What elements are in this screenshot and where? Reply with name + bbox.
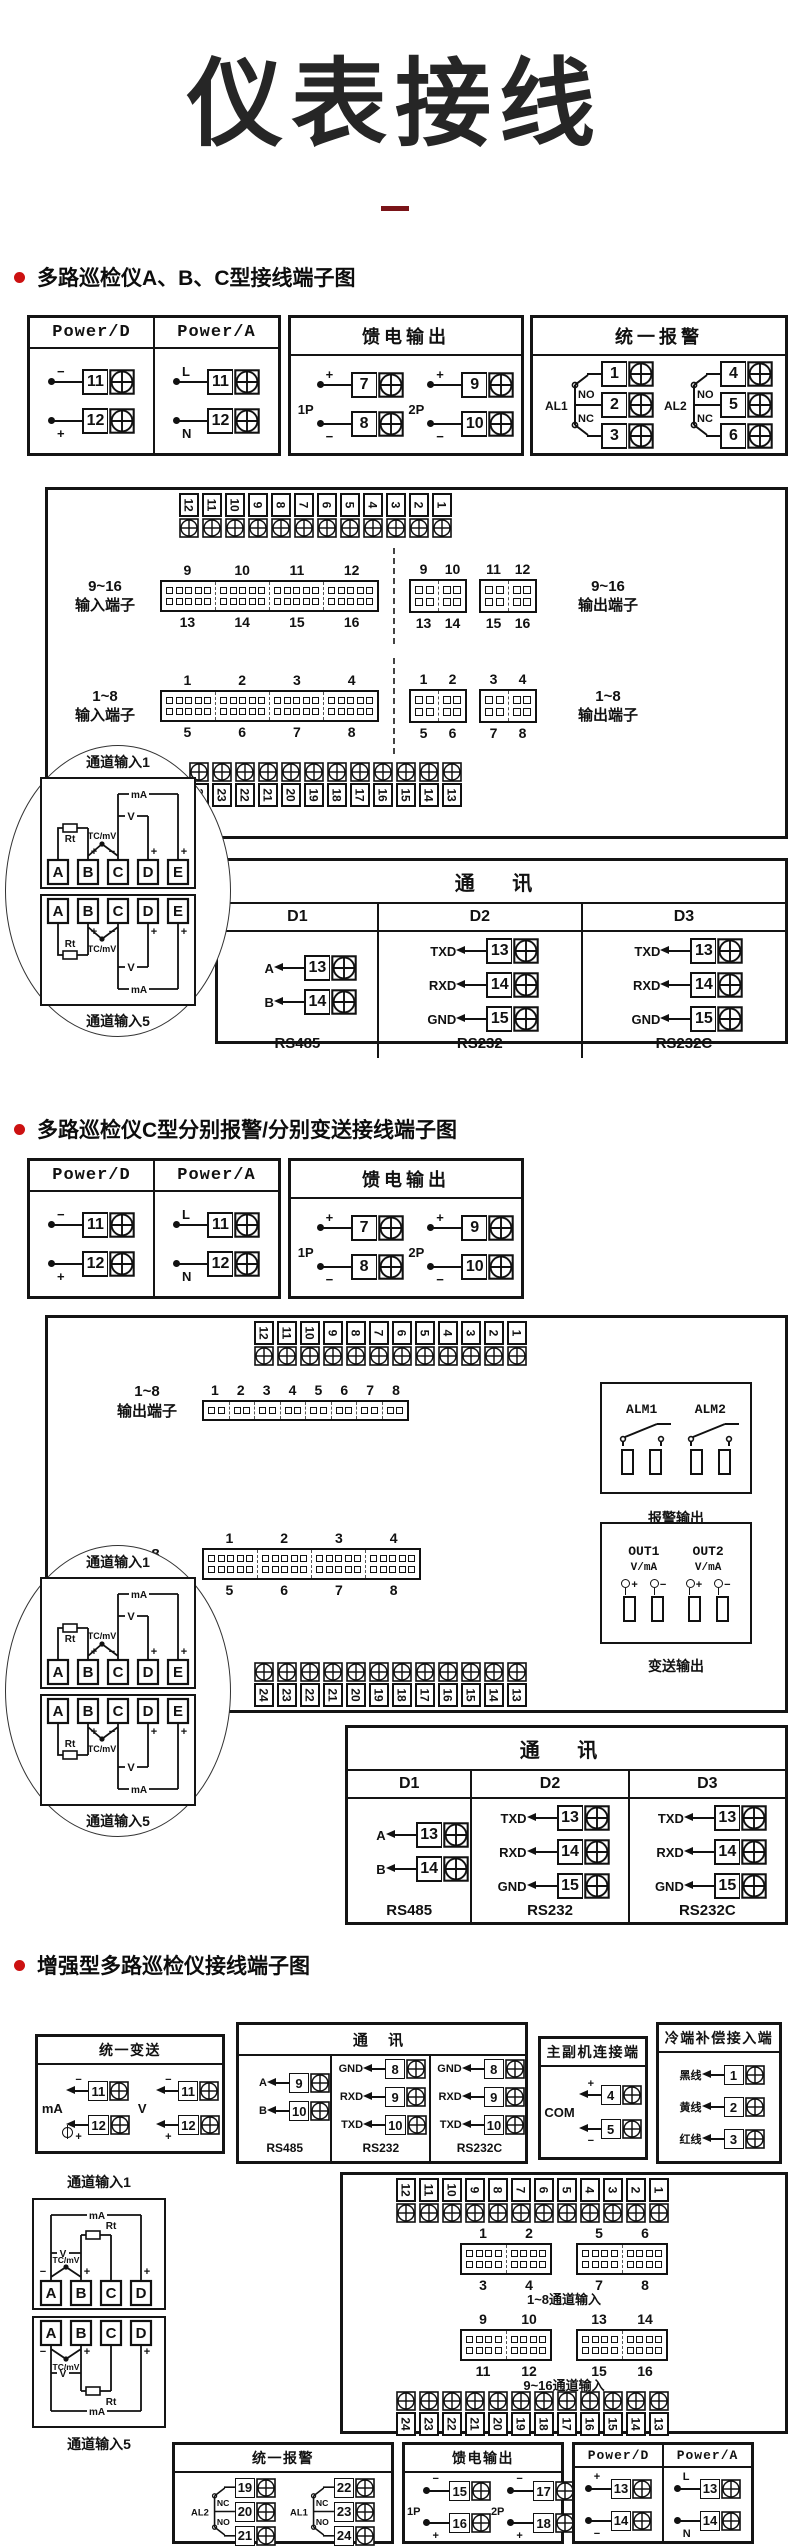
sq [453,586,461,594]
snum: 18 [392,1683,412,1707]
connector: 13141516 [576,2311,668,2379]
output-label: OUT1 [628,1544,659,1559]
terminal-strip: 242322212019181716151413 [188,762,462,807]
path [691,1424,739,1446]
coldbody: 黑线1黄线2红线3 [659,2053,779,2161]
sq [262,1555,269,1562]
channel-circuit-box: ABCDERtTC/mVVmA+−++ [40,1694,196,1806]
pin-numbers: 12 [460,2225,552,2241]
mid: + [91,846,97,858]
snum: 6 [534,2178,554,2202]
sq [513,696,521,704]
screw-terminal-icon [340,518,360,538]
sq [485,2250,492,2257]
sq [511,2347,518,2354]
b: 3 [312,1530,367,1546]
sq [284,587,291,594]
connector: 1234 [460,2225,552,2293]
snum: 2 [484,1321,504,1345]
sq [370,1566,377,1573]
aterm: 5 [720,392,773,418]
terminal-strip: 242322212019181716151413 [253,1662,527,1707]
cgrow [220,708,265,715]
resistor-icon [86,2231,100,2239]
screw-terminal-icon [626,2391,646,2411]
cgrow [208,1566,253,1573]
mid: B [83,1703,94,1720]
sq [281,1566,288,1573]
junction-dot [63,2356,68,2361]
sq [582,2261,589,2268]
sq [396,1407,403,1414]
i: 23 [214,788,228,801]
sq [176,697,183,704]
sq [230,587,237,594]
sq [239,708,246,715]
sq [601,2347,608,2354]
b: 16 [324,614,379,630]
cgrow [274,587,319,594]
unified-alarm-box: 统一报警AL2NCNO192021AL1NCNO222324 [172,2442,394,2544]
screw-terminal-icon [406,2059,426,2079]
i: 2 [412,502,426,509]
b: 4 [508,671,537,687]
snum: 9 [465,2178,485,2202]
tsign: N [182,427,191,440]
screw-terminal-icon [628,423,654,449]
sq [627,2261,634,2268]
connector-block [202,1400,409,1421]
arrow-wire [267,2072,289,2094]
sq [303,697,310,704]
cgrow [627,2347,663,2354]
sq [539,2336,546,2343]
power-column: Power/D+13−14 [575,2445,662,2541]
terminal-number: 15 [449,2481,469,2501]
arrow-left-icon [579,2090,588,2098]
screw-terminal-icon [406,2087,426,2107]
screw-terminal-icon [580,2391,600,2411]
comm-header: 通 讯 [218,861,785,904]
strip-terminal: 4 [579,2178,600,2223]
wired-terminal: +18 [507,2511,574,2535]
sq [303,587,310,594]
terminal-number: 11 [82,369,108,395]
comm-column: D3TXD13RXD14GND15RS232C [628,1771,785,1925]
arrow-left-icon [702,2070,711,2078]
screw-terminal-icon [628,392,654,418]
terminal-number: 7 [351,372,377,398]
tdot [507,2487,514,2494]
strip-terminal: 2 [625,2178,646,2223]
b: 10 [438,561,467,577]
i: 11 [422,2184,436,2197]
tsign: L [182,1208,190,1221]
sq [259,1407,266,1414]
wire: − [317,1255,351,1279]
strip-terminal: 13 [441,762,462,807]
sq [230,598,237,605]
aterms: 456 [720,361,773,449]
sq [485,2261,492,2268]
sq [246,1555,253,1562]
mid: D [143,864,154,881]
cgrow [582,2250,618,2257]
feed-group: 2P+9−10 [408,1215,514,1280]
sq [316,1555,323,1562]
snum: 21 [258,783,278,807]
path [313,2487,333,2536]
screw-terminal-icon [331,955,357,981]
sq [291,1566,298,1573]
screw-terminal-icon [331,989,357,1015]
screw-terminal-icon [632,2511,652,2531]
minus-pin: − [650,1579,666,1591]
text: NC [316,2498,328,2508]
junction-dot [99,936,104,941]
b: 1 [160,672,215,688]
sq [291,1555,298,1562]
snum: 21 [323,1683,343,1707]
sq [328,587,335,594]
i: 9 [326,1330,340,1337]
contact-pins [623,1596,664,1622]
screw-terminal-icon [488,2203,508,2223]
i [649,1449,662,1475]
sq [520,2347,527,2354]
tsign: + [594,2472,600,2483]
sq [249,697,256,704]
channel-label: 通道输入5 [86,1011,150,1031]
channel-circuit-diagram: ABCDRtTC/mVVmA−++ [35,2319,163,2425]
i [688,1596,701,1622]
sq [513,586,521,594]
sq [523,708,531,716]
crows: A9B10 [239,2056,330,2138]
cg [280,1402,306,1419]
i: 6 [395,1330,409,1337]
ccols: D1A13B14RS485D2TXD13RXD14GND15RS232D3TXD… [218,904,785,1058]
comm-protocol: RS485 [274,1035,320,1052]
mid: V [60,2249,67,2260]
b: 1 [202,1530,257,1546]
b: 14 [622,2311,668,2327]
i: 17 [417,1688,431,1701]
b: 10 [506,2311,552,2327]
feed-group: 2P+9−10 [408,372,514,437]
cgrow [415,586,434,594]
sq [258,697,265,704]
tsign: + [75,2132,81,2143]
terminal-number: 17 [533,2481,553,2501]
b: 5 [202,1582,257,1598]
signal-label: GND [648,1879,684,1894]
mid: A [53,864,64,881]
sq [310,1407,317,1414]
terminal-number: 14 [486,972,512,998]
strip-terminal: 5 [414,1321,435,1366]
sq [592,2261,599,2268]
snum: 11 [419,2178,439,2202]
txterms: −11+12 [156,2080,219,2136]
tdot [585,2485,592,2492]
b: 2 [228,1382,254,1398]
i: 3 [464,1330,478,1337]
wire: L [173,370,207,394]
screw-terminal-icon [407,2115,427,2135]
arrow-left-icon [386,1864,395,1872]
page: 仪表接线 多路巡检仪A、B、C型接线端子图 Power/D−11+12Power… [0,0,790,2546]
fbody: 1P−15+162P−17+18 [405,2473,561,2541]
snum: 14 [626,2412,646,2436]
sq [218,1407,225,1414]
screw-terminal-icon [534,2203,554,2223]
snum: 12 [179,493,199,517]
feed-group: 1P+7−8 [298,1215,404,1280]
b: 11 [270,562,325,578]
arrow-wire [363,2114,385,2136]
cgrow [627,2250,663,2257]
cg [269,582,323,610]
arrow-left-icon [660,1014,669,1022]
channel-label: 通道输入5 [67,2434,131,2454]
connector-block [460,2329,552,2361]
strip-terminal: 21 [322,1662,343,1707]
screw-terminal-icon [386,518,406,538]
resistor-icon [63,951,77,959]
tsign: + [57,427,65,440]
output-type: V/mA [695,1562,721,1574]
sq [601,2336,608,2343]
sq [274,598,281,605]
arrow-left-icon [267,2106,276,2114]
sq [335,1555,342,1562]
strip-terminal: 3 [602,2178,623,2223]
screw-terminal-icon [557,2391,577,2411]
arrow-terminal: GND15 [491,1873,610,1899]
snum: 20 [281,783,301,807]
cg [438,581,466,611]
cgrow [466,2336,502,2343]
mid: Rt [65,1634,76,1645]
b: 2 [438,671,467,687]
mid: + [91,926,97,938]
transmit-group: mA−11+12 [40,2080,129,2136]
screw-terminal-icon [603,2203,623,2223]
b: 7 [312,1582,367,1598]
path [51,2215,141,2281]
g [313,2487,333,2536]
i: 3 [606,2187,620,2194]
sq [443,598,451,606]
pterms: −11+12 [30,349,153,453]
i [718,1449,731,1475]
screw-terminal-icon [513,1006,539,1032]
snum: 23 [419,2412,439,2436]
screw-terminal-icon [461,1346,481,1366]
mid: + [181,1646,187,1658]
i: 14 [421,788,435,801]
screw-terminal-icon [396,762,416,782]
arrow-wire [363,2086,385,2108]
arrow-terminal: 黑线1 [674,2064,765,2086]
channel-circuit-box: ABCDRtTC/mVVmA−++ [32,2316,166,2428]
comm-header: 通 讯 [239,2025,525,2056]
circle [658,1436,663,1441]
b: 13 [160,614,215,630]
arrow-terminal: GND8 [335,2058,426,2080]
screw-terminal-icon [534,2391,554,2411]
sq [520,2261,527,2268]
screw-terminal-icon [378,1254,404,1280]
snum: 18 [327,783,347,807]
snum: 4 [580,2178,600,2202]
strip-terminal: 18 [391,1662,412,1707]
channel-circuit-box: ABCDRtTC/mVVmA−++ [32,2198,166,2310]
power-column: Power/AL13N14 [662,2445,751,2541]
comm-protocol: RS232 [362,2141,399,2155]
tdot [48,378,55,385]
arrow-terminal: B14 [350,1856,469,1882]
sq [204,598,211,605]
sq [347,598,354,605]
snum: 9 [248,493,268,517]
cgrow [166,587,211,594]
channel-circuit-diagram: ABCDERtTC/mVVmA+−++ [43,897,193,1003]
relay-label: ALM1 [626,1402,657,1417]
transmit-output-box: OUT1V/mA+−OUT2V/mA+− [600,1522,752,1644]
snum: 13 [507,1683,527,1707]
comm-box: 通 讯A9B10RS485GND8RXD9TXD10RS232GND8RXD9T… [236,2022,528,2164]
strip-terminal: 16 [437,1662,458,1707]
terminal-number: 13 [304,955,330,981]
page-title: 仪表接线 [0,26,790,165]
i: 21 [325,1688,339,1701]
arrow-terminal: RXD9 [335,2086,426,2108]
cgrow [485,708,504,716]
i: 19 [513,2417,527,2430]
snum: 19 [369,1683,389,1707]
channel-circuit-box: ABCDERtTC/mVVmA+−++ [40,1577,196,1689]
tdot [427,381,434,388]
screw-terminal-icon [488,2391,508,2411]
wire: N [674,2509,700,2533]
mid: A [46,2325,57,2342]
tsign: + [516,2531,522,2542]
b: 6 [438,725,467,741]
i: 23 [279,1688,293,1701]
mid: D [143,1703,154,1720]
sq [496,696,504,704]
box-header: 冷端补偿接入端 [659,2025,779,2053]
screw-terminal-icon [717,938,743,964]
cg [438,691,466,721]
resistor-icon [63,1624,77,1632]
screw-terminal-icon [419,2203,439,2223]
cgrow [511,2336,547,2343]
snum: 14 [419,783,439,807]
mid: V [60,2369,67,2380]
screw-terminal-icon [415,1346,435,1366]
screw-terminal-icon [584,1805,610,1831]
i: 24 [256,1688,270,1701]
sq [293,708,300,715]
mid: − [109,1646,115,1658]
sq [466,2336,473,2343]
fterms: +7−8 [317,1215,404,1280]
sq [176,598,183,605]
connector-block [160,580,379,612]
sq [218,1566,225,1573]
sq [269,1407,276,1414]
snum: 10 [300,1321,320,1345]
terminal-number: 14 [700,2511,720,2531]
terminal-number: 14 [416,1856,442,1882]
sq [312,708,319,715]
signal-label: 黑线 [674,2067,702,2083]
sq [646,2261,653,2268]
wire: + [317,373,351,397]
b: + [631,1579,637,1591]
sq [655,2250,662,2257]
sq [466,2250,473,2257]
signal-label: GND [624,1012,660,1027]
strip-terminal: 3 [460,1321,481,1366]
sq [185,587,192,594]
crows: TXD13RXD14GND15 [491,1805,610,1899]
wired-terminal: +9 [427,1215,514,1241]
meter-icon [62,2127,73,2138]
bullet-icon [14,1124,25,1135]
strip-terminal: 11 [276,1321,297,1366]
screw-terminal-icon [355,2526,375,2546]
sq [361,1407,368,1414]
transmit-channel: OUT1V/mA+− [621,1544,666,1622]
arrow-terminal: −11 [66,2080,129,2102]
connector: 1256 [409,671,467,741]
terminal-number: 15 [714,1873,740,1899]
sq [220,587,227,594]
screw-terminal-icon [294,518,314,538]
cgrow [485,696,504,704]
channel-circuit-box: ABCDERtTC/mVVmA+−++ [40,894,196,1006]
mid: Rt [65,939,76,950]
terminal-number: 13 [690,938,716,964]
i: 2 [487,1330,501,1337]
tsign: − [165,2075,171,2086]
sq [592,2250,599,2257]
sq [611,2250,618,2257]
relay-switch-icon: AL1NONC [545,361,601,449]
screw-terminal-icon [256,2526,276,2546]
mid: − [109,926,115,938]
strip-terminal: 13 [506,1662,527,1707]
strip-terminal: 13 [648,2391,669,2436]
screw-terminal-icon [235,762,255,782]
cgrow [485,598,504,606]
strip-terminal: 6 [316,493,337,538]
snum: 12 [254,1321,274,1345]
connector-block [576,2329,668,2361]
i: 19 [371,1688,385,1701]
sq [496,586,504,594]
arrow-left-icon [363,2092,372,2100]
i: 6 [320,502,334,509]
b: 4 [366,1530,421,1546]
connector-block [479,689,537,723]
channel-label: 通道输入5 [86,1811,150,1831]
mid: E [173,864,183,881]
